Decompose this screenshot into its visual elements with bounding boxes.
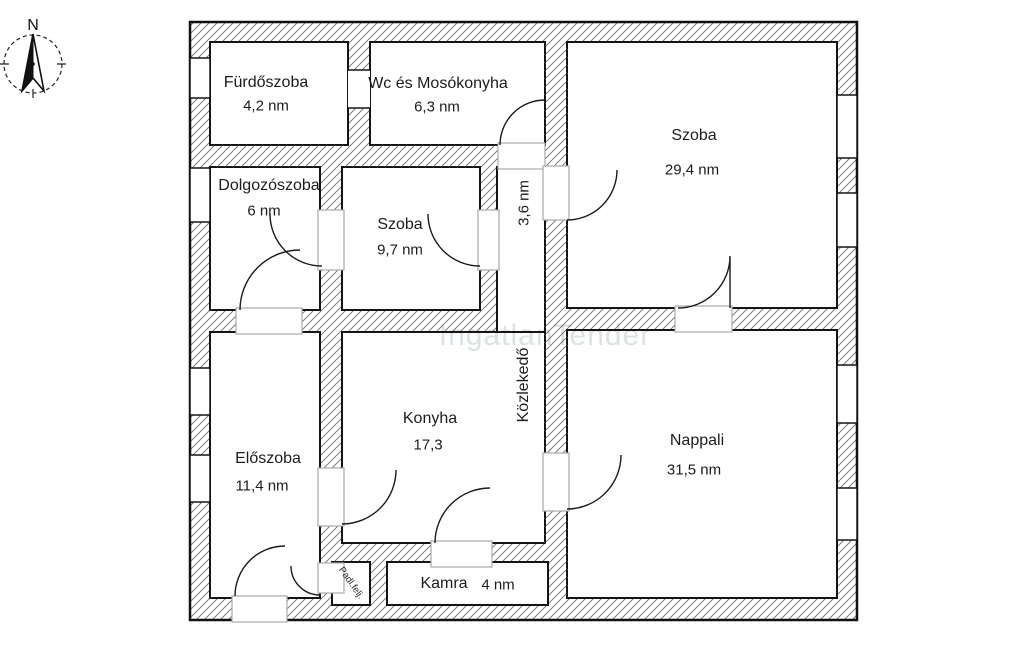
- label-wc-area: 6,3 nm: [414, 99, 460, 116]
- label-szoba-nagy-area: 29,4 nm: [665, 162, 719, 179]
- door-kozlekedo-szoba-nagy: [543, 166, 569, 220]
- label-konyha-name: Konyha: [403, 410, 457, 428]
- floor-plan: N IngatlanTender Fürdőszoba 4,2 nm Wc és…: [0, 0, 1024, 661]
- label-dolgozoszoba-area: 6 nm: [247, 203, 280, 220]
- label-eloszoba-name: Előszoba: [235, 450, 301, 468]
- compass: N: [0, 17, 66, 98]
- window-right-2: [837, 193, 857, 247]
- label-kozlekedo-area: 3,6 nm: [516, 180, 533, 226]
- compass-north-label: N: [27, 17, 39, 34]
- door-szoba-nagy-nappali: [675, 306, 732, 332]
- label-kozlekedo-name: Közlekedő: [515, 348, 533, 423]
- label-furdoszoba-name: Fürdőszoba: [224, 74, 309, 92]
- compass-needle-fill: [22, 34, 33, 91]
- room-szoba-kis: [342, 167, 480, 310]
- label-wc-name: Wc és Mosókonyha: [368, 75, 508, 93]
- label-eloszoba-area: 11,4 nm: [235, 478, 288, 495]
- door-dolgozoszoba-eloszoba: [236, 308, 302, 334]
- door-wc-kozlekedo: [498, 143, 545, 169]
- label-dolgozoszoba-name: Dolgozószoba: [218, 177, 319, 195]
- label-furdoszoba-area: 4,2 nm: [243, 98, 289, 115]
- label-nappali-area: 31,5 nm: [667, 462, 721, 479]
- window-right-3: [837, 365, 857, 423]
- window-right-4: [837, 488, 857, 540]
- door-kozlekedo-szoba-kis: [478, 210, 499, 270]
- passage-furdoszoba-wc: [348, 70, 370, 108]
- door-entrance: [232, 596, 287, 622]
- label-szoba-kis-name: Szoba: [377, 216, 422, 234]
- room-furdoszoba: [210, 42, 348, 145]
- label-konyha-area: 17,3: [413, 437, 442, 454]
- door-dolgozoszoba-szoba-kis: [318, 210, 344, 270]
- label-szoba-kis-area: 9,7 nm: [377, 242, 423, 259]
- window-left-3: [190, 368, 210, 415]
- door-konyha-nappali: [543, 453, 569, 511]
- label-nappali-name: Nappali: [670, 432, 724, 450]
- door-eloszoba-konyha: [318, 468, 344, 526]
- window-left-2: [190, 168, 210, 222]
- door-konyha-kamra: [431, 541, 492, 567]
- window-left-1: [190, 58, 210, 98]
- watermark: IngatlanTender: [439, 319, 652, 353]
- label-kamra-name: Kamra: [420, 575, 467, 593]
- compass-center-dot: [31, 62, 35, 66]
- room-wc-mosokonyha: [370, 42, 545, 145]
- label-szoba-nagy-name: Szoba: [671, 127, 716, 145]
- window-left-4: [190, 455, 210, 502]
- window-right-1: [837, 95, 857, 158]
- label-kamra-area: 4 nm: [481, 577, 514, 594]
